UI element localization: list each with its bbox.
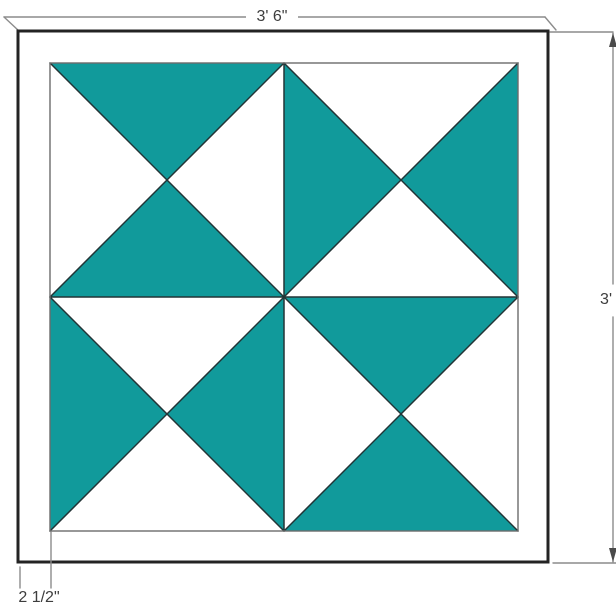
border-width-label: 2 1/2" xyxy=(8,589,70,607)
arrow-up-icon xyxy=(609,33,616,47)
diagram-canvas xyxy=(0,0,616,616)
patch-outlines xyxy=(50,63,518,531)
arrow-down-icon xyxy=(609,548,616,562)
width-dimension-label: 3' 6" xyxy=(246,8,298,26)
height-dimension-label: 3' xyxy=(586,291,612,309)
barn-quilt-dimension-diagram: 3' 6" 3' 2 1/2" xyxy=(0,0,616,616)
quilt-pattern xyxy=(50,63,518,531)
